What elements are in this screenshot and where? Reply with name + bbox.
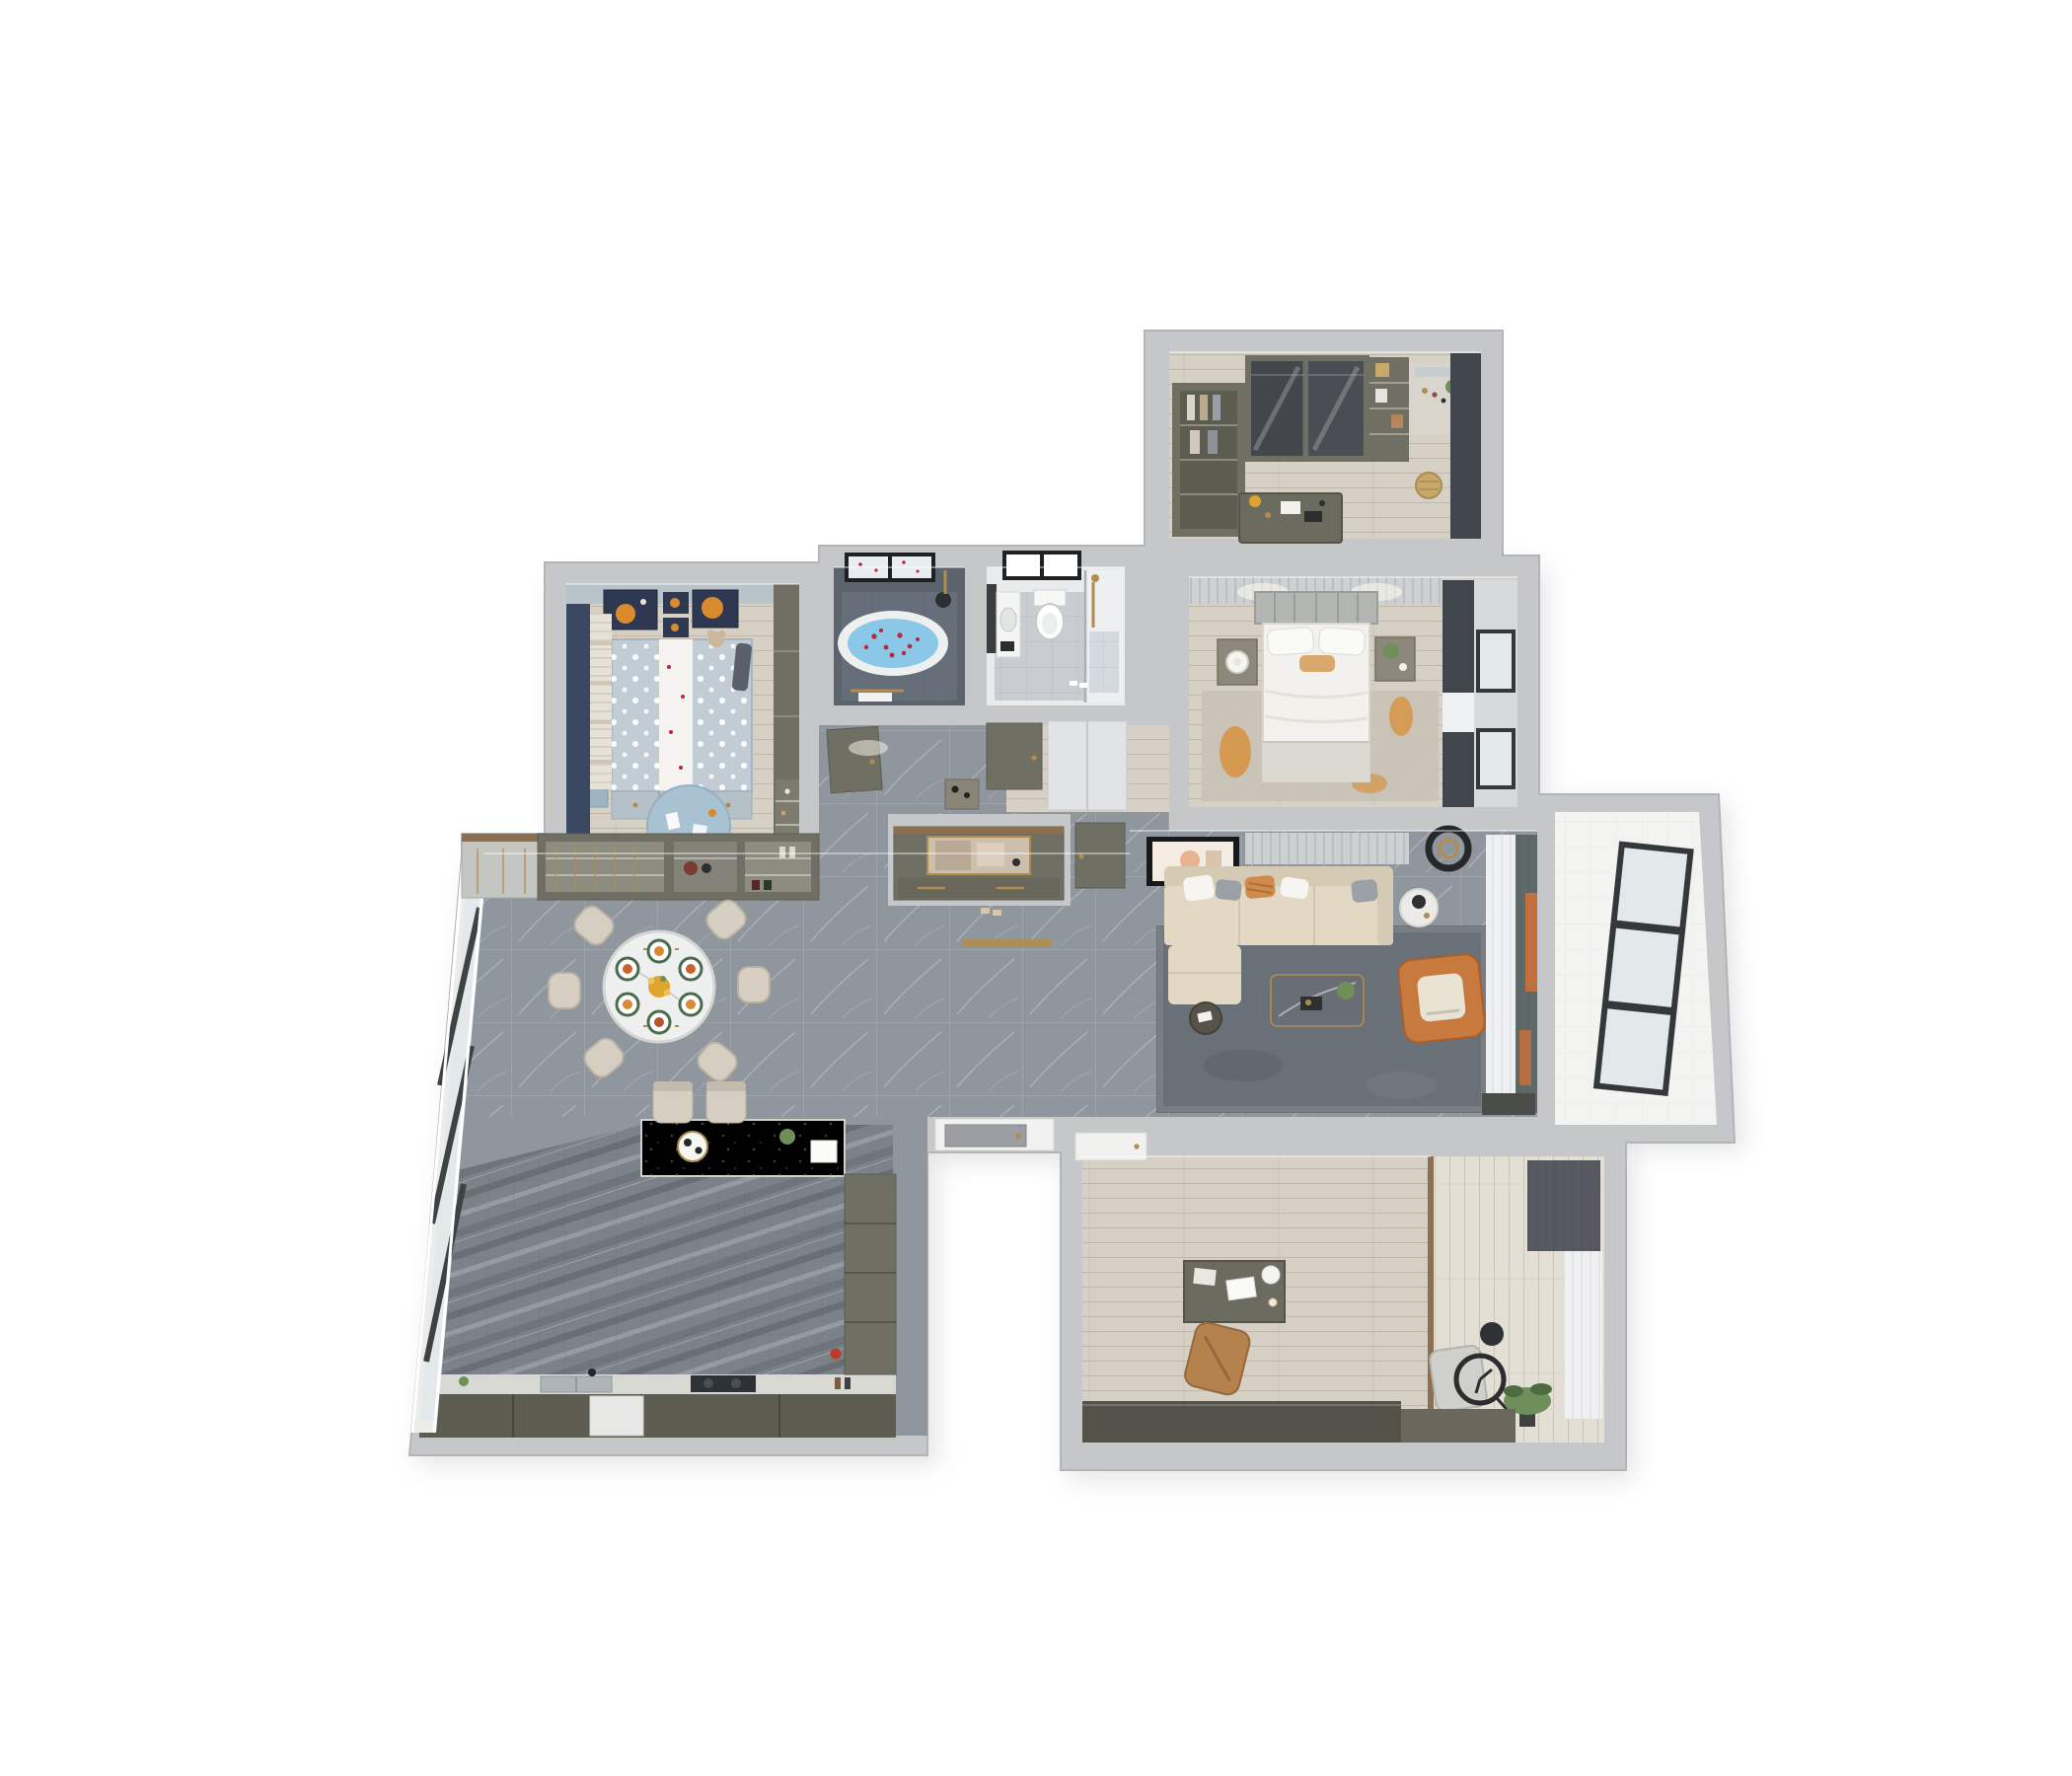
wine-sideboard: [462, 834, 819, 900]
kids-wardrobe: [774, 584, 799, 854]
master-curtains-windows: [1443, 580, 1517, 807]
room-bathroom-shower: [987, 551, 1125, 705]
room-walk-in-closet: [1169, 352, 1481, 543]
closet-desk-island: [1239, 493, 1342, 543]
closet-rattan-basket: [1416, 473, 1442, 498]
room-study: [1075, 1133, 1604, 1443]
hall-console: [945, 779, 979, 809]
kitchen-counter-run: [419, 1369, 896, 1438]
room-balcony: [1555, 812, 1717, 1125]
toilet: [1034, 590, 1066, 639]
entry-threshold: [962, 939, 1051, 947]
closet-sliding-glass-wardrobe: [1245, 355, 1369, 462]
room-kids-bedroom: [566, 584, 799, 868]
ceiling-slats: [1245, 833, 1409, 864]
room-master-bedroom: [1189, 577, 1517, 807]
kitchen-island: [641, 1120, 845, 1176]
dining-table: [604, 931, 714, 1042]
master-nightstand-left: [1218, 639, 1257, 685]
coffee-table: [1271, 975, 1364, 1026]
master-bed: [1255, 592, 1377, 781]
floor-plan-rendering: [0, 0, 2072, 1776]
closet-shelf-unit: [1369, 357, 1409, 462]
living-low-cabinet: [1482, 1093, 1535, 1115]
floor-plan-stage: [0, 0, 2072, 1776]
side-table-dark: [1190, 1002, 1221, 1034]
room-living: [1130, 829, 1537, 1117]
entry-door: [935, 1119, 1054, 1150]
study-desk: [1184, 1261, 1285, 1322]
closet-open-wardrobe: [1172, 383, 1245, 537]
armchair-orange: [1397, 953, 1486, 1044]
living-curtains: [1486, 835, 1537, 1113]
kitchen-red-kettle: [831, 1349, 842, 1360]
kids-bed: [612, 630, 752, 791]
vanity-sink: [987, 584, 1020, 657]
room-bathroom-tub: [834, 553, 965, 705]
side-table-white-lamp: [1400, 889, 1438, 926]
closet-curtains: [1450, 353, 1481, 539]
shower-window: [1002, 551, 1081, 580]
kitchen-tall-cabinet: [845, 1174, 896, 1374]
master-nightstand-right: [1375, 637, 1415, 681]
